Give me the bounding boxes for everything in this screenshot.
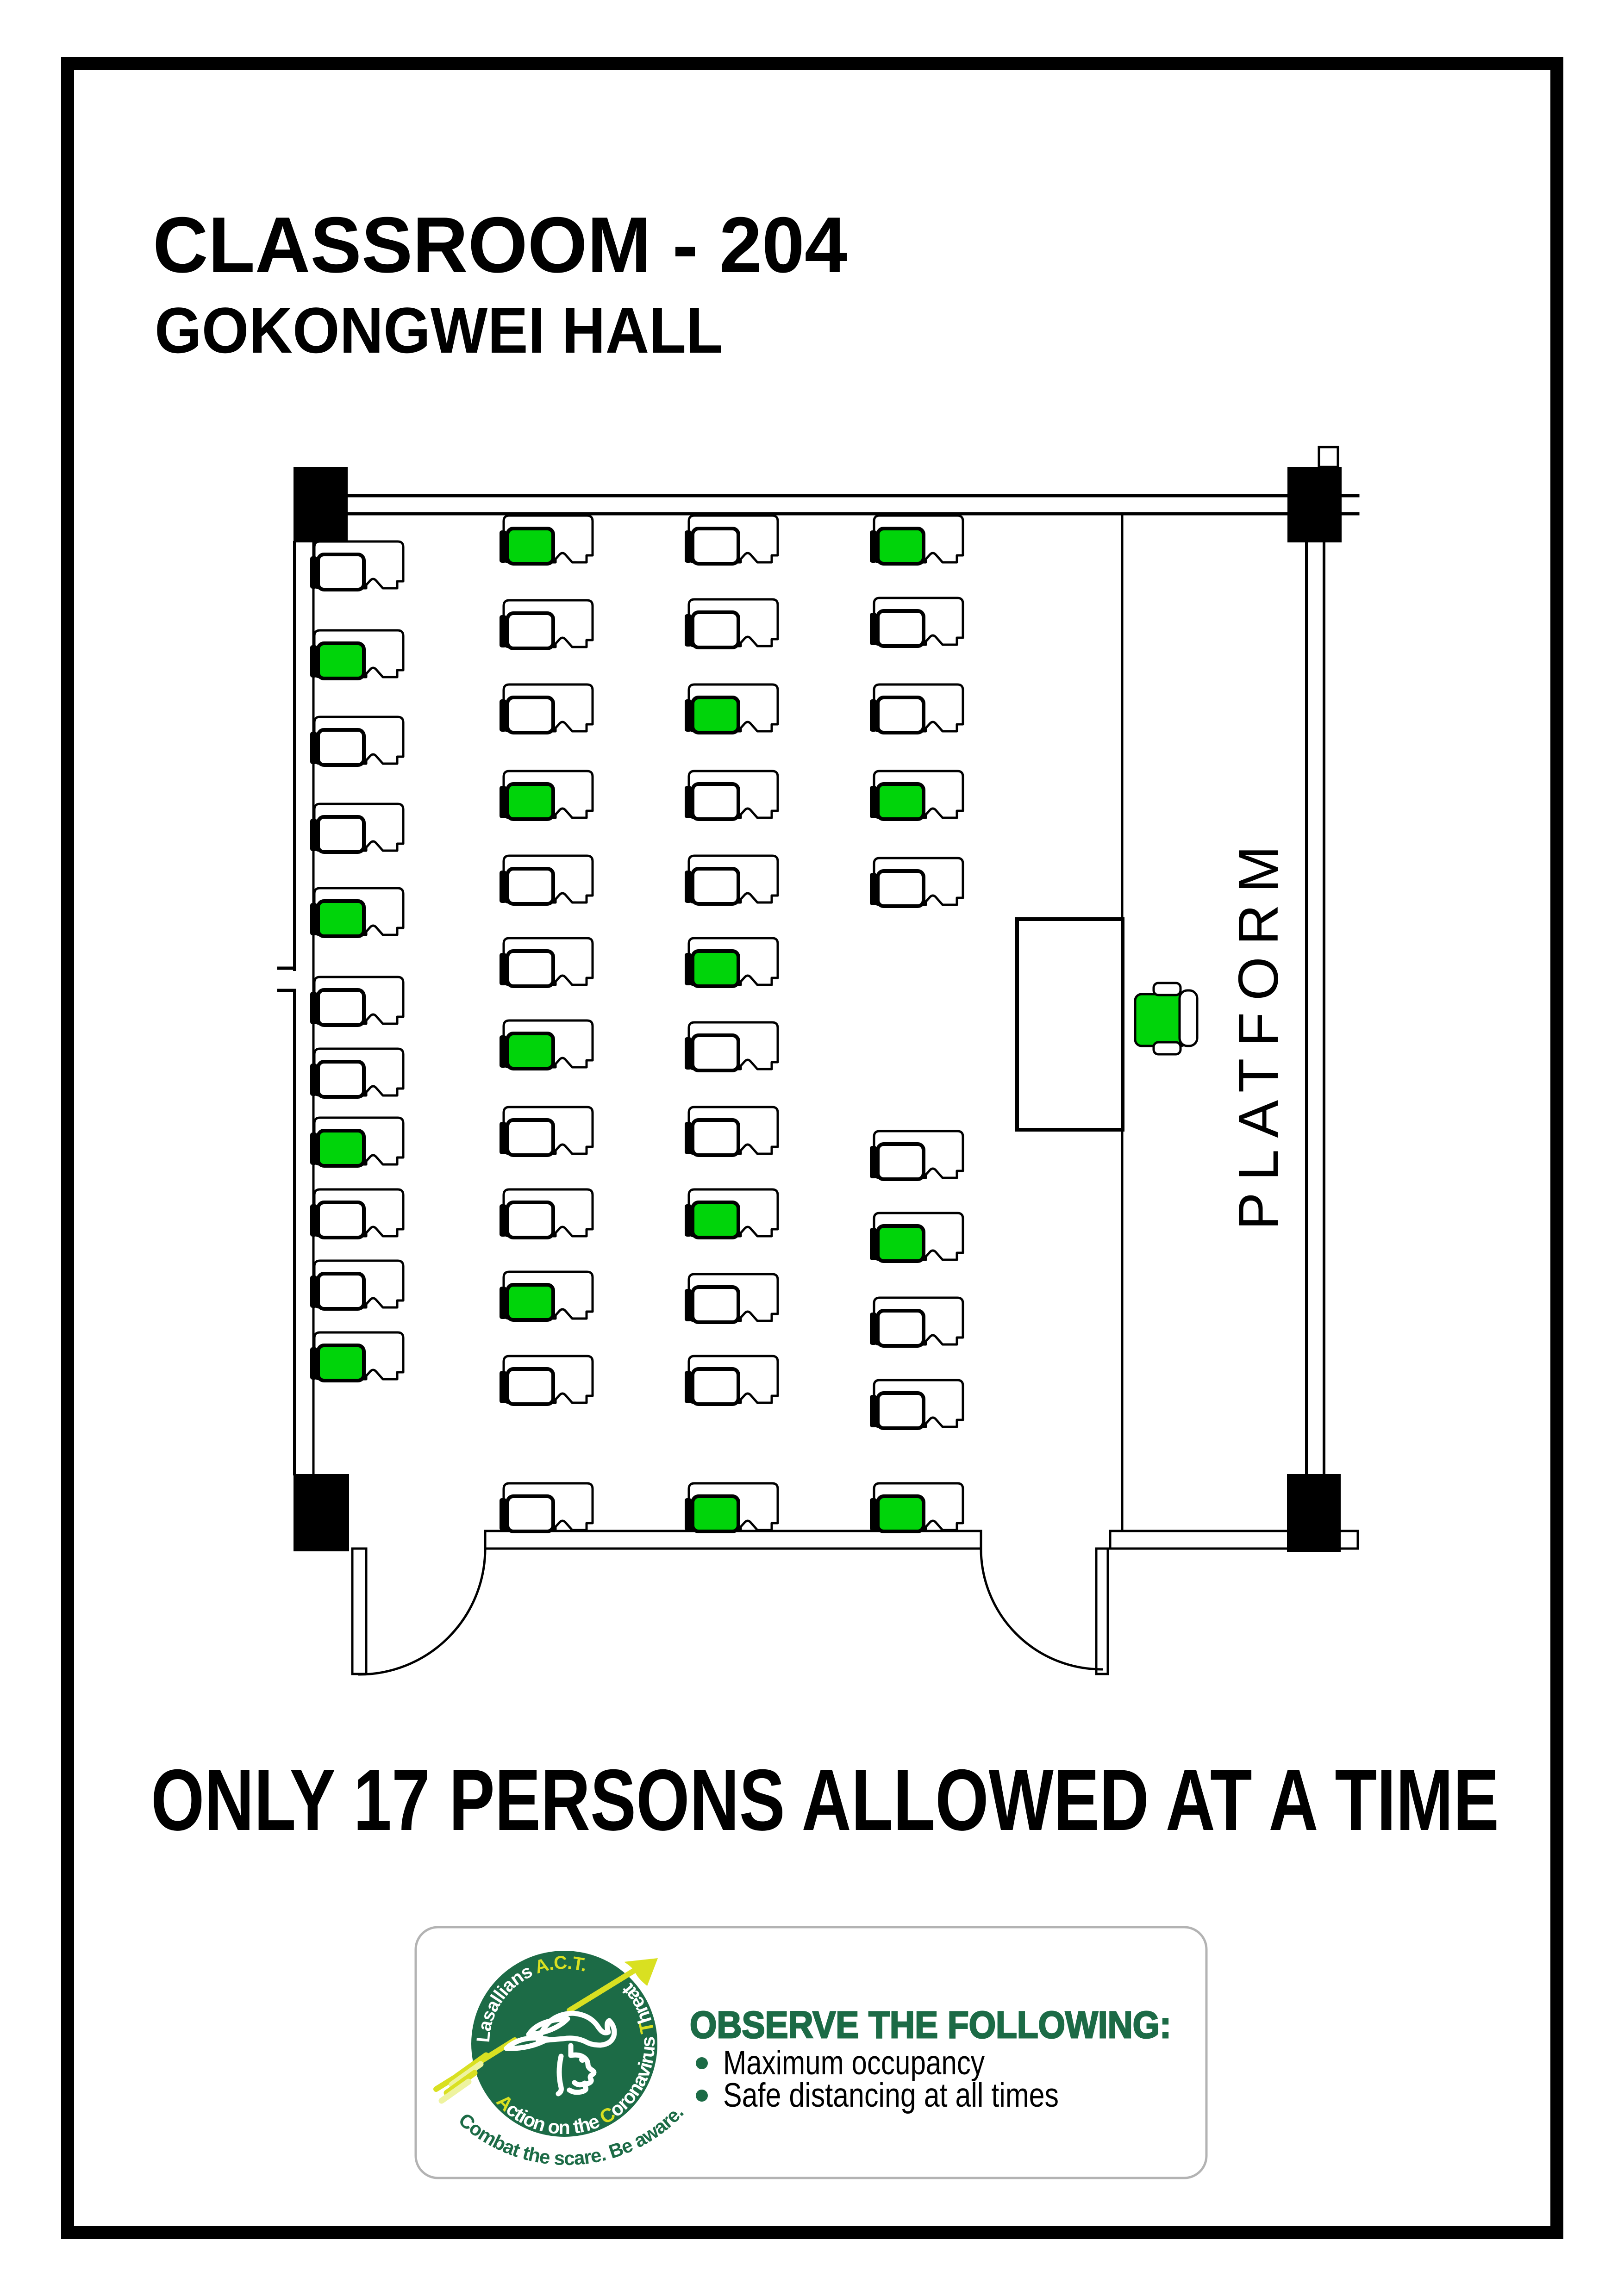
svg-text:Safe distancing at all times: Safe distancing at all times: [723, 2077, 1059, 2114]
svg-text:Maximum occupancy: Maximum occupancy: [723, 2044, 985, 2082]
svg-text:CLASSROOM - 204: CLASSROOM - 204: [153, 201, 847, 289]
svg-text:ONLY 17 PERSONS ALLOWED AT A T: ONLY 17 PERSONS ALLOWED AT A TIME: [151, 1751, 1499, 1848]
svg-text:OBSERVE THE FOLLOWING:: OBSERVE THE FOLLOWING:: [690, 2004, 1171, 2046]
svg-text:PLATFORM: PLATFORM: [1227, 834, 1290, 1230]
svg-text:GOKONGWEI HALL: GOKONGWEI HALL: [155, 294, 723, 367]
